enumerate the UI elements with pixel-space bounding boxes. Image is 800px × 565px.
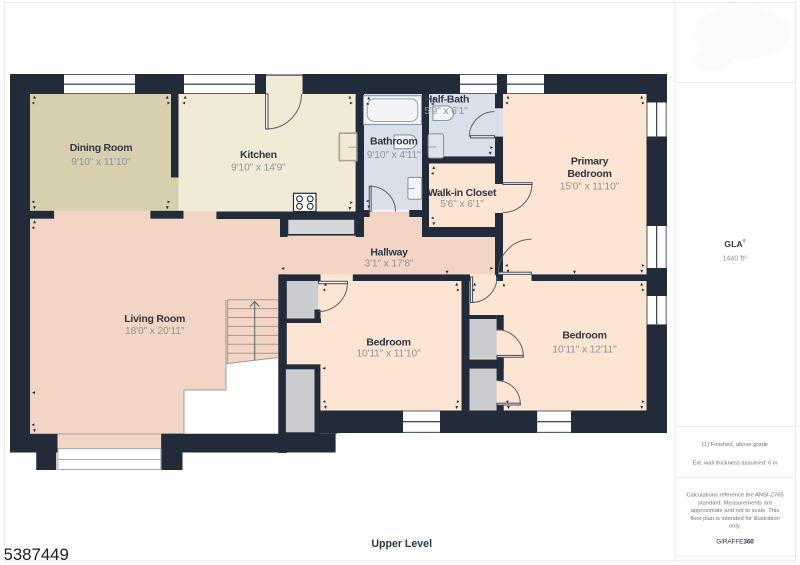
svg-text:5'9" x 6'1": 5'9" x 6'1" <box>424 106 468 117</box>
svg-text:Bedroom: Bedroom <box>562 330 606 342</box>
svg-text:Calculations reference the ANS: Calculations reference the ANSI-Z765 <box>686 493 783 499</box>
svg-text:Kitchen: Kitchen <box>240 149 277 161</box>
svg-text:Walk-in Closet: Walk-in Closet <box>428 187 497 199</box>
svg-text:10'11" x 12'11": 10'11" x 12'11" <box>552 344 617 355</box>
svg-text:9'10" x 11'10": 9'10" x 11'10" <box>71 157 131 168</box>
svg-text:9'10" x 4'11": 9'10" x 4'11" <box>367 150 421 161</box>
svg-text:floor plan is intended for ill: floor plan is intended for illustration <box>690 516 780 522</box>
svg-text:Upper Level: Upper Level <box>371 538 432 550</box>
svg-text:5'6" x 6'1": 5'6" x 6'1" <box>440 199 484 210</box>
svg-text:approximate and not to scale.: approximate and not to scale. This <box>691 508 780 514</box>
svg-text:Primary: Primary <box>571 155 609 167</box>
svg-text:GLA: GLA <box>724 239 742 249</box>
svg-text:Bedroom: Bedroom <box>366 336 410 348</box>
svg-text:3'1" x 17'8": 3'1" x 17'8" <box>364 258 413 269</box>
svg-text:15'0" x 11'10": 15'0" x 11'10" <box>560 182 620 193</box>
svg-text:18'0" x 20'11": 18'0" x 20'11" <box>125 326 185 337</box>
svg-text:Bathroom: Bathroom <box>370 136 418 148</box>
svg-text:Half-Bath: Half-Bath <box>425 93 469 105</box>
svg-text:GIRAFFE360: GIRAFFE360 <box>716 538 754 545</box>
svg-text:only.: only. <box>729 524 741 530</box>
svg-text:Bedroom: Bedroom <box>567 168 611 180</box>
svg-text:Hallway: Hallway <box>370 246 408 258</box>
svg-text:1440 ft²: 1440 ft² <box>722 253 747 262</box>
svg-text:standard. Measurements are: standard. Measurements are <box>698 500 772 506</box>
svg-text:Ext. wall thickness assumed: 6: Ext. wall thickness assumed: 6 in <box>692 461 777 467</box>
svg-text:10'11" x 11'10": 10'11" x 11'10" <box>356 349 421 360</box>
svg-text:Living Room: Living Room <box>124 313 185 325</box>
svg-text:Dining Room: Dining Room <box>70 142 133 154</box>
svg-text:9'10" x 14'9": 9'10" x 14'9" <box>231 163 286 174</box>
svg-text:(1) Finished, above grade: (1) Finished, above grade <box>702 442 768 448</box>
